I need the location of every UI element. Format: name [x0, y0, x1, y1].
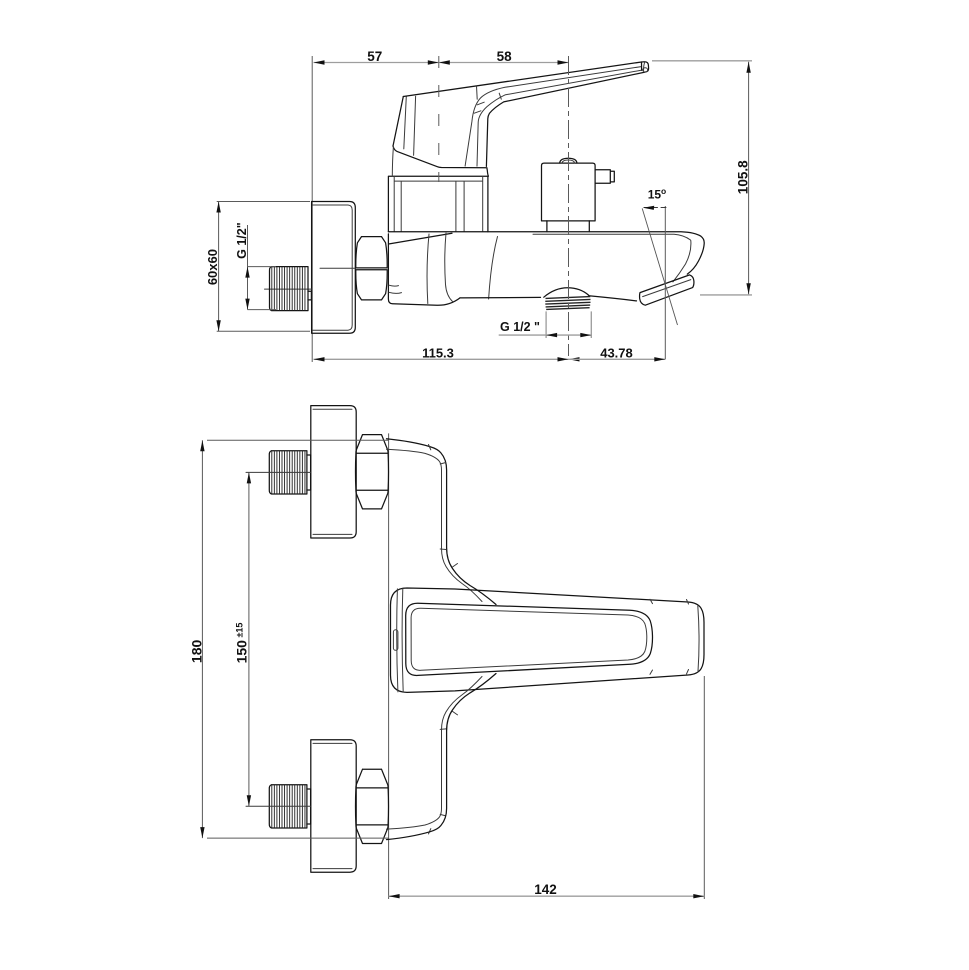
svg-text:180: 180: [188, 640, 204, 664]
svg-text:60x60: 60x60: [205, 249, 220, 285]
svg-text:57: 57: [367, 49, 382, 64]
svg-text:43.78: 43.78: [600, 345, 633, 360]
svg-text:115.3: 115.3: [422, 345, 454, 360]
svg-text:G 1/2 ": G 1/2 ": [500, 320, 540, 334]
svg-text:142: 142: [534, 882, 557, 897]
svg-text:105.8: 105.8: [736, 160, 751, 194]
svg-text:G 1/2": G 1/2": [235, 222, 249, 259]
svg-text:58: 58: [497, 49, 513, 64]
